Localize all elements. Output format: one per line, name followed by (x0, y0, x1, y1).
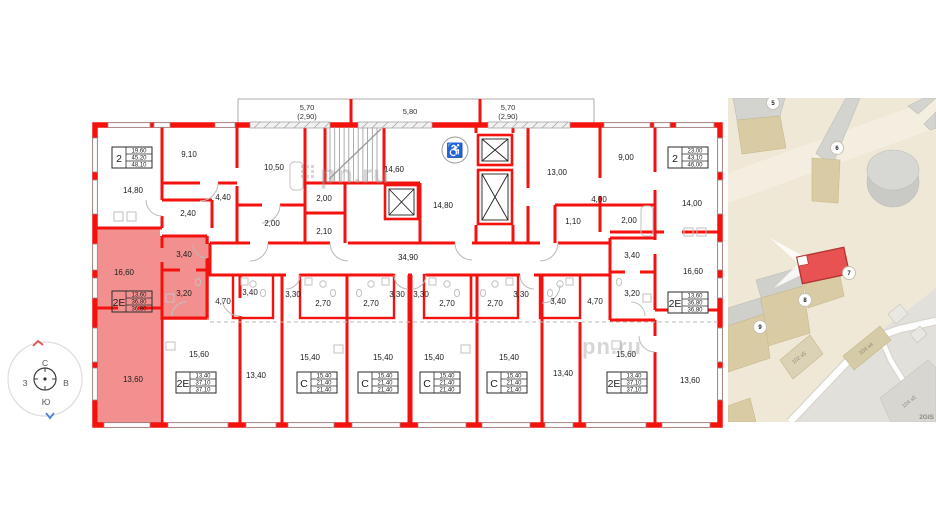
apartment-stat-box-2-left[interactable]: 2 19,60 45,20 48,10 (112, 147, 152, 169)
svg-text:2Е: 2Е (177, 378, 190, 390)
svg-text:15,40: 15,40 (377, 374, 393, 380)
svg-text:36,80: 36,80 (687, 308, 703, 314)
svg-text:19,60: 19,60 (131, 149, 147, 155)
svg-text:21,40: 21,40 (377, 388, 393, 394)
balcony-dimension-labels: 5,70 (2,90) 5,80 5,70 (2,90) (297, 103, 518, 121)
room-area-label: 15,40 (373, 353, 394, 362)
svg-text:21,40: 21,40 (506, 381, 522, 387)
apartment-stat-box-2e-bottom-left[interactable]: 2Е 13,40 37,10 37,10 (176, 372, 216, 394)
room-area-label: 4,70 (215, 297, 231, 306)
room-area-label: 2,00 (621, 216, 637, 225)
room-area-label: 3,40 (550, 297, 566, 306)
room-area-label: 15,40 (499, 353, 520, 362)
compass-north-label: С (42, 358, 48, 368)
room-area-label: 14,80 (123, 186, 144, 195)
svg-text:♿: ♿ (446, 142, 463, 159)
room-area-label: 3,30 (413, 290, 429, 299)
apartment-stat-box-2e-right[interactable]: 2Е 13,60 36,80 36,80 (668, 292, 708, 314)
map-badge-6[interactable]: 6 (831, 142, 844, 155)
room-area-label: 2,40 (180, 209, 196, 218)
svg-text:37,10: 37,10 (195, 388, 211, 394)
room-area-label: 15,40 (424, 353, 445, 362)
corridor-area-label: 34,90 (398, 253, 419, 262)
room-area-label: 13,00 (547, 168, 568, 177)
compass-rose: С В Ю З (8, 341, 82, 418)
svg-text:С: С (300, 378, 308, 390)
room-area-label: 14,80 (433, 201, 454, 210)
balcony-dimension-label: 5,80 (403, 107, 418, 116)
svg-text:С: С (361, 378, 369, 390)
map-badge-7[interactable]: 7 (843, 267, 856, 280)
balcony-window-hatch (250, 122, 570, 128)
room-area-label: 4,70 (587, 297, 603, 306)
room-area-label: 4,00 (591, 195, 607, 204)
room-area-label: 3,40 (624, 251, 640, 260)
room-area-label: 15,60 (189, 350, 210, 359)
room-area-label: 2,00 (264, 219, 280, 228)
room-area-label: 2,70 (439, 299, 455, 308)
svg-text:37,10: 37,10 (626, 388, 642, 394)
room-area-label: 9,10 (181, 150, 197, 159)
svg-text:21,40: 21,40 (506, 388, 522, 394)
svg-text:15,40: 15,40 (439, 374, 455, 380)
room-area-label: 13,40 (553, 369, 574, 378)
svg-text:37,10: 37,10 (195, 381, 211, 387)
compass-west-label: З (22, 378, 27, 388)
svg-text:15,40: 15,40 (316, 374, 332, 380)
svg-text:43,10: 43,10 (687, 156, 703, 162)
map-badge-9[interactable]: 9 (754, 321, 767, 334)
balcony-dimension-label: (2,90) (297, 112, 317, 121)
room-area-label: 3,20 (624, 289, 640, 298)
svg-text:48,10: 48,10 (131, 163, 147, 169)
floorplan-viewer: ♿ (0, 0, 936, 527)
svg-text:2Е: 2Е (669, 298, 682, 310)
map-badge-8[interactable]: 8 (799, 294, 812, 307)
room-area-label: 2,10 (316, 227, 332, 236)
room-area-label: 1,10 (565, 217, 581, 226)
svg-text:23,00: 23,00 (687, 149, 703, 155)
svg-text:21,40: 21,40 (316, 388, 332, 394)
room-area-label: 4,40 (215, 193, 231, 202)
room-area-label: 2,70 (363, 299, 379, 308)
balcony-dimension-label: (2,90) (498, 112, 518, 121)
svg-text:37,10: 37,10 (626, 381, 642, 387)
svg-text:15,40: 15,40 (506, 374, 522, 380)
selected-apartment-overlay[interactable] (98, 228, 209, 423)
room-area-label: 13,60 (123, 375, 144, 384)
svg-text:45,20: 45,20 (131, 156, 147, 162)
room-area-label: 2,00 (316, 194, 332, 203)
map-svg: 5 6 7 8 9 104 к4 102 к5 104 к5 2GIS (728, 98, 936, 422)
studio-stat-box-3[interactable]: С 15,40 21,40 21,40 (420, 372, 460, 394)
studio-stat-box-2[interactable]: С 15,40 21,40 21,40 (358, 372, 398, 394)
svg-text:21,40: 21,40 (316, 381, 332, 387)
room-area-label: 3,30 (513, 290, 529, 299)
svg-text:46,00: 46,00 (687, 163, 703, 169)
svg-text:13,40: 13,40 (195, 374, 211, 380)
room-area-label: 3,40 (176, 250, 192, 259)
map-badge-5[interactable]: 5 (767, 98, 780, 110)
room-area-label: 3,30 (389, 290, 405, 299)
apartment-stat-box-2-right[interactable]: 2 23,00 43,10 46,00 (668, 147, 708, 169)
room-area-label: 16,60 (114, 268, 135, 277)
room-area-label: 3,20 (176, 289, 192, 298)
svg-text:21,40: 21,40 (377, 381, 393, 387)
svg-text:21,40: 21,40 (439, 381, 455, 387)
room-area-label: 16,60 (683, 267, 704, 276)
room-area-label: 3,40 (242, 288, 258, 297)
watermark-pnru: pn.ru pn.ru (301, 159, 642, 359)
studio-stat-box-4[interactable]: С 15,40 21,40 21,40 (487, 372, 527, 394)
room-area-label: 3,30 (285, 290, 301, 299)
balcony-dimension-label: 5,70 (501, 103, 516, 112)
studio-stat-box-1[interactable]: С 15,40 21,40 21,40 (297, 372, 337, 394)
svg-text:2: 2 (116, 153, 122, 165)
map-panel[interactable]: 5 6 7 8 9 104 к4 102 к5 104 к5 2GIS (728, 98, 936, 422)
svg-text:2: 2 (672, 153, 678, 165)
room-area-label: 9,00 (618, 153, 634, 162)
room-area-label: 13,60 (680, 376, 701, 385)
svg-text:С: С (490, 378, 498, 390)
room-area-label: 10,50 (264, 163, 285, 172)
svg-text:21,40: 21,40 (439, 388, 455, 394)
room-area-label: 2,70 (315, 299, 331, 308)
svg-text:2Е: 2Е (608, 378, 621, 390)
room-area-label: 15,40 (300, 353, 321, 362)
svg-text:36,80: 36,80 (131, 300, 147, 306)
svg-text:pn.ru: pn.ru (320, 159, 390, 189)
svg-text:36,80: 36,80 (131, 307, 147, 313)
wheelchair-accessible-icon: ♿ (442, 137, 468, 163)
svg-text:С: С (423, 378, 431, 390)
svg-text:13,40: 13,40 (626, 374, 642, 380)
compass-east-label: В (63, 378, 69, 388)
room-area-label: 13,40 (246, 371, 267, 380)
room-area-label: 2,70 (487, 299, 503, 308)
svg-text:2Е: 2Е (113, 297, 126, 309)
balcony-dimension-label: 5,70 (300, 103, 315, 112)
apartment-stat-box-2e-bottom-right[interactable]: 2Е 13,40 37,10 37,10 (607, 372, 647, 394)
compass-south-label: Ю (42, 397, 51, 407)
svg-text:36,80: 36,80 (687, 301, 703, 307)
svg-text:pn.ru: pn.ru (582, 334, 642, 359)
map-provider-logo: 2GIS (919, 414, 934, 421)
room-area-label: 14,00 (682, 199, 703, 208)
svg-text:13,60: 13,60 (131, 293, 147, 299)
svg-text:13,60: 13,60 (687, 294, 703, 300)
